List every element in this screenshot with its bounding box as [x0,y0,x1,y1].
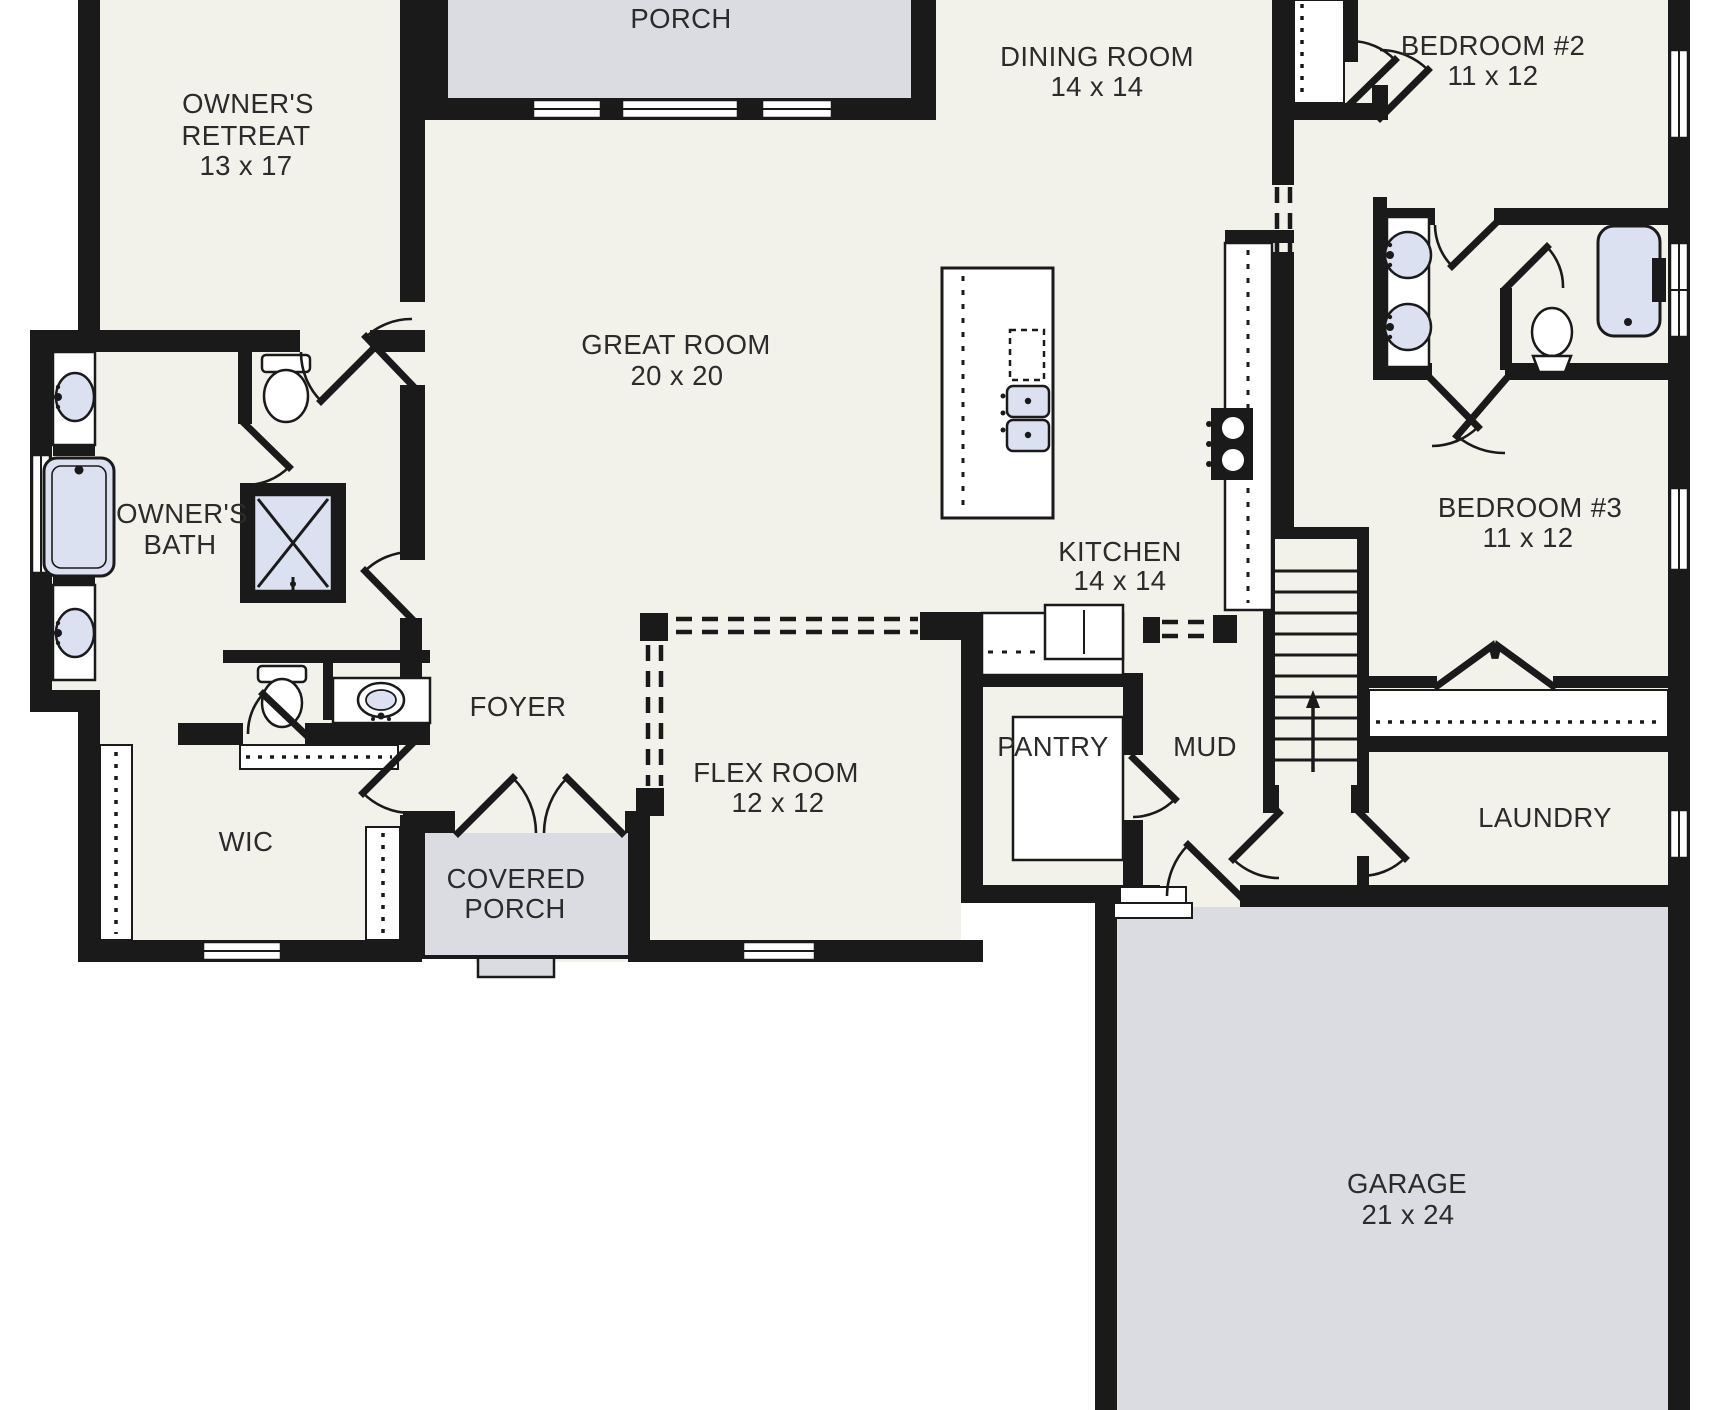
bathtub [1598,226,1666,336]
label-pantry: PANTRY [997,731,1108,762]
label-kitchen: KITCHEN [1058,536,1182,567]
vanity-sink [53,585,95,680]
laundry-window [1670,810,1688,858]
label-garage-dims: 21 x 24 [1361,1199,1454,1230]
shower [254,495,332,591]
label-bedroom-2-dims: 11 x 12 [1448,60,1539,91]
label-great-room-dims: 20 x 20 [630,360,723,391]
label-owners-retreat-1: OWNER'S [182,88,314,119]
label-foyer: FOYER [470,691,567,722]
double-vanity [1385,217,1431,367]
label-owners-retreat-dims: 13 x 17 [199,150,292,181]
label-owners-bath-2: BATH [144,529,217,560]
label-flex-room-dims: 12 x 12 [731,787,824,818]
label-dining-room: DINING ROOM [1000,41,1194,72]
floor-plan-drawing: PORCH OWNER'S RETREAT 13 x 17 DINING ROO… [0,0,1720,1410]
garage-area [1117,907,1670,1410]
bath2-window [1670,243,1688,337]
label-kitchen-dims: 14 x 14 [1073,565,1166,596]
label-mud: MUD [1173,731,1237,762]
toilet [1532,308,1572,372]
vanity-sink [53,352,95,445]
flex-window [743,942,815,960]
porch-step [478,957,554,977]
label-wic: WIC [219,826,274,857]
label-owners-bath-1: OWNER'S [116,498,248,529]
bathtub [44,458,114,576]
wic-window [203,942,281,960]
kitchen-island [942,268,1053,518]
bedroom3-window [1670,488,1688,570]
cooktop [1206,408,1253,480]
pedestal-sink [333,678,430,723]
porch-window [762,100,832,118]
floor-plan-page: PORCH OWNER'S RETREAT 13 x 17 DINING ROO… [0,0,1720,1410]
label-owners-retreat-2: RETREAT [181,120,310,151]
garage-steps [1114,887,1192,918]
label-dining-room-dims: 14 x 14 [1050,71,1143,102]
bedroom2-window [1670,50,1688,138]
label-bedroom-2: BEDROOM #2 [1401,30,1585,61]
label-covered-porch-2: PORCH [464,893,565,924]
label-porch: PORCH [630,3,731,34]
porch-window [533,100,601,118]
label-great-room: GREAT ROOM [581,329,770,360]
porch-window [622,100,738,118]
label-covered-porch-1: COVERED [447,863,586,894]
label-flex-room: FLEX ROOM [693,757,859,788]
label-bedroom-3-dims: 11 x 12 [1483,522,1574,553]
label-laundry: LAUNDRY [1478,802,1612,833]
label-bedroom-3: BEDROOM #3 [1438,492,1622,523]
label-garage: GARAGE [1347,1168,1467,1199]
